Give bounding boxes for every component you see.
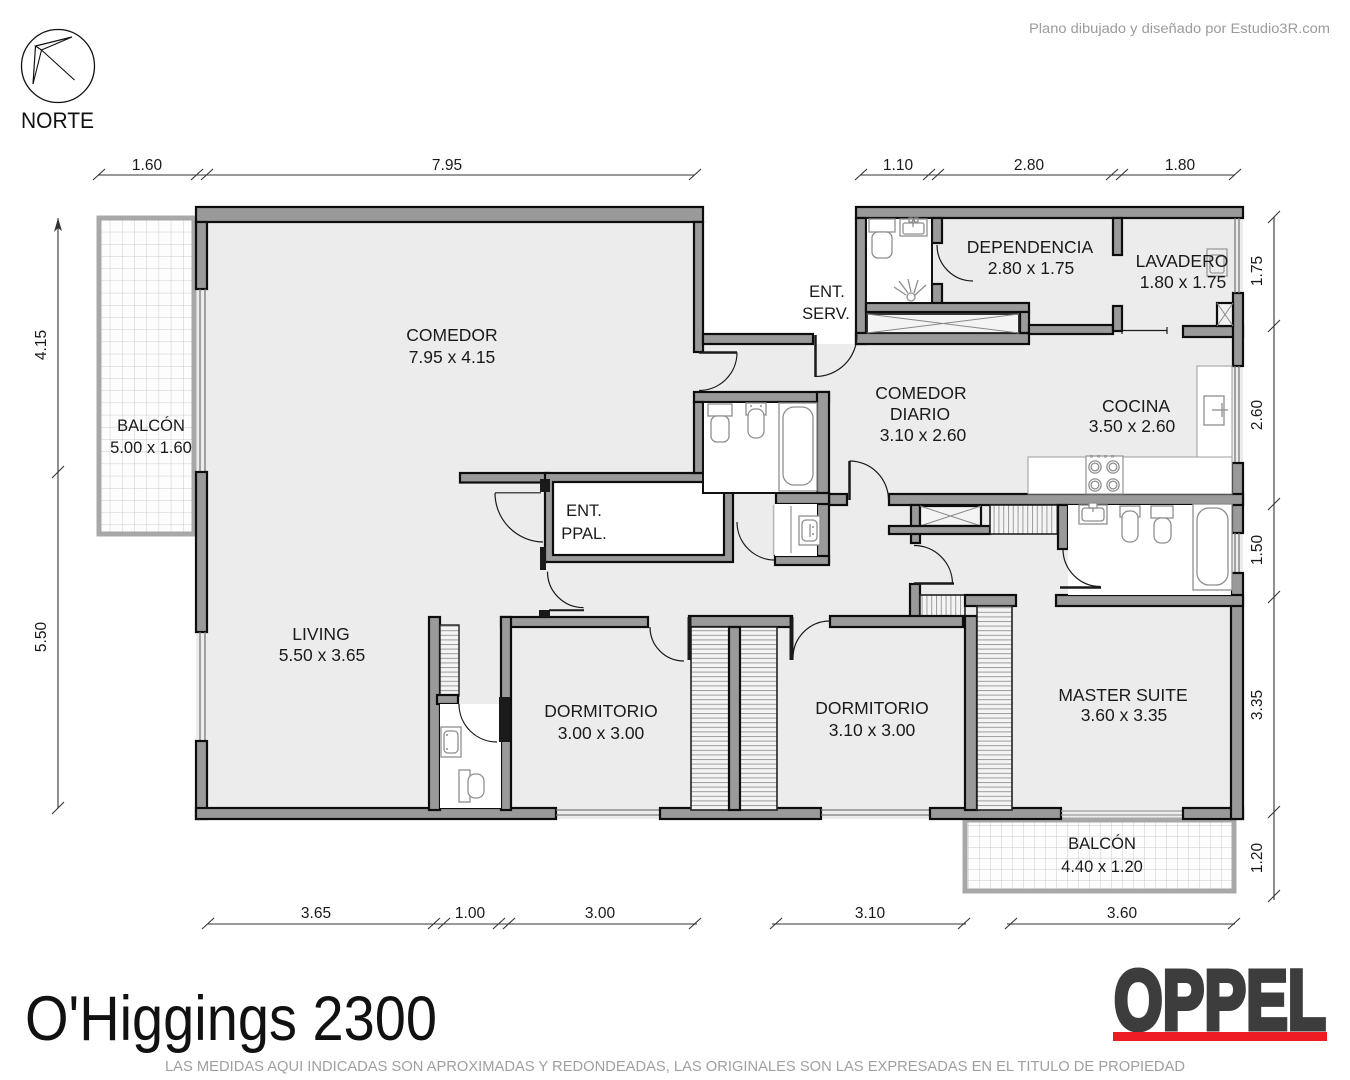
svg-text:NORTE: NORTE (21, 108, 94, 133)
svg-text:4.40 x 1.20: 4.40 x 1.20 (1061, 858, 1143, 876)
svg-text:DORMITORIO: DORMITORIO (544, 701, 657, 721)
svg-text:1.75: 1.75 (1249, 256, 1266, 286)
svg-text:DORMITORIO: DORMITORIO (815, 698, 928, 718)
svg-text:3.65: 3.65 (301, 905, 331, 922)
svg-text:3.10 x 2.60: 3.10 x 2.60 (880, 425, 967, 445)
svg-text:O'Higgings 2300: O'Higgings 2300 (25, 984, 437, 1054)
svg-text:3.10: 3.10 (855, 905, 886, 922)
svg-text:ENT.: ENT. (566, 502, 602, 520)
svg-text:LIVING: LIVING (292, 624, 349, 644)
svg-text:4.15: 4.15 (33, 330, 50, 360)
svg-text:1.80 x 1.75: 1.80 x 1.75 (1140, 272, 1227, 292)
svg-text:3.60 x 3.35: 3.60 x 3.35 (1081, 705, 1168, 725)
svg-text:LAVADERO: LAVADERO (1136, 251, 1229, 271)
svg-text:2.80 x 1.75: 2.80 x 1.75 (988, 258, 1075, 278)
svg-text:SERV.: SERV. (802, 305, 850, 323)
svg-text:1.20: 1.20 (1249, 843, 1266, 874)
svg-text:COMEDOR: COMEDOR (406, 325, 497, 345)
svg-text:1.60: 1.60 (132, 157, 163, 174)
svg-text:DEPENDENCIA: DEPENDENCIA (967, 237, 1094, 257)
svg-text:COMEDOR: COMEDOR (875, 383, 966, 403)
svg-text:7.95: 7.95 (432, 157, 462, 174)
svg-text:5.50 x 3.65: 5.50 x 3.65 (279, 645, 366, 665)
svg-text:BALCÓN: BALCÓN (117, 416, 185, 435)
svg-text:3.50 x 2.60: 3.50 x 2.60 (1089, 416, 1176, 436)
svg-text:BALCÓN: BALCÓN (1068, 834, 1136, 853)
svg-text:1.50: 1.50 (1249, 535, 1266, 566)
svg-text:PPAL.: PPAL. (561, 525, 607, 543)
svg-text:ENT.: ENT. (809, 283, 845, 301)
svg-text:MASTER SUITE: MASTER SUITE (1058, 685, 1187, 705)
svg-text:7.95 x 4.15: 7.95 x 4.15 (409, 347, 496, 367)
svg-text:Plano dibujado y diseñado por: Plano dibujado y diseñado por Estudio3R.… (1029, 21, 1330, 36)
svg-text:3.35: 3.35 (1249, 690, 1266, 720)
svg-text:2.80: 2.80 (1014, 157, 1045, 174)
svg-text:5.50: 5.50 (33, 622, 50, 653)
svg-text:DIARIO: DIARIO (890, 404, 950, 424)
svg-text:1.10: 1.10 (883, 157, 914, 174)
svg-text:1.00: 1.00 (455, 905, 486, 922)
svg-text:LAS MEDIDAS AQUI INDICADAS SON: LAS MEDIDAS AQUI INDICADAS SON APROXIMAD… (165, 1058, 1185, 1075)
svg-text:5.00 x 1.60: 5.00 x 1.60 (110, 439, 192, 457)
svg-text:1.80: 1.80 (1165, 157, 1196, 174)
svg-text:3.10 x 3.00: 3.10 x 3.00 (829, 720, 916, 740)
svg-text:3.60: 3.60 (1107, 905, 1138, 922)
svg-text:3.00 x 3.00: 3.00 x 3.00 (558, 723, 645, 743)
svg-text:3.00: 3.00 (585, 905, 616, 922)
svg-text:2.60: 2.60 (1249, 400, 1266, 431)
svg-text:COCINA: COCINA (1102, 396, 1170, 416)
